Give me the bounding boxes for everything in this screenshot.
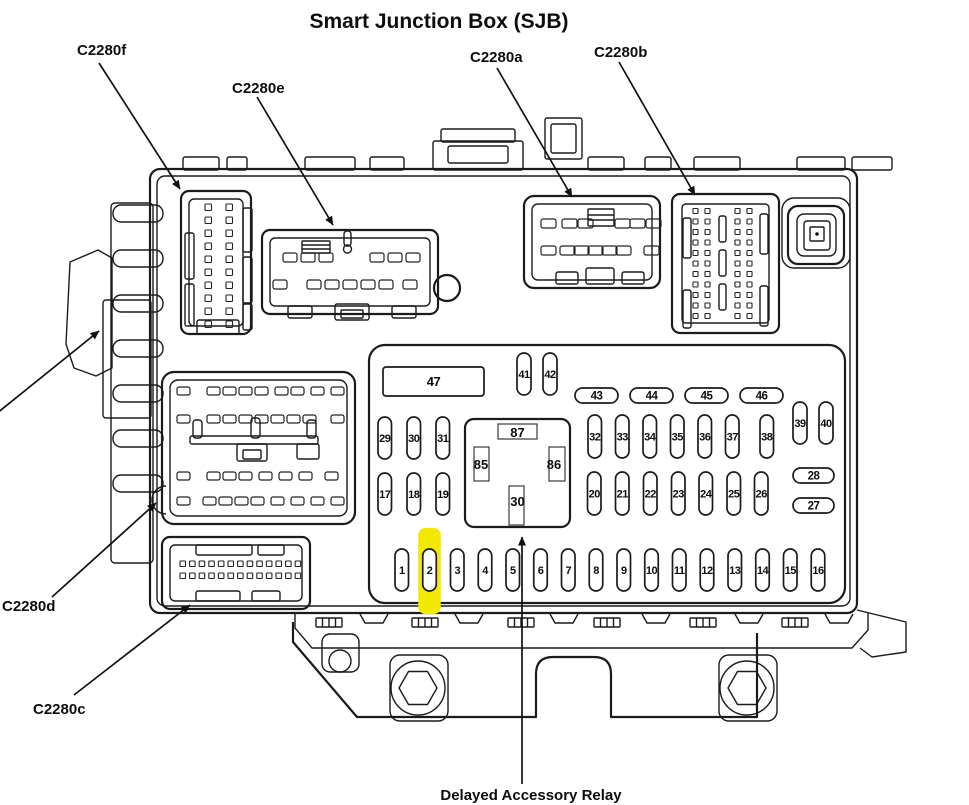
fuse-layer: 4741424344454629303117181932333435363738… xyxy=(378,353,834,591)
fuse-label-19: 19 xyxy=(437,489,449,501)
label-c2280c: C2280c xyxy=(33,701,86,718)
fuse-label-44: 44 xyxy=(646,391,659,403)
c2280e-leader-line xyxy=(257,97,333,225)
relay-label-86: 86 xyxy=(547,457,561,472)
relay-block: 87 85 86 30 xyxy=(465,419,570,527)
fuse-label-29: 29 xyxy=(379,433,391,445)
fuse-label-17: 17 xyxy=(379,489,391,501)
fuse-label-7: 7 xyxy=(565,565,571,577)
fuse-panel: 4741424344454629303117181932333435363738… xyxy=(369,345,845,614)
fuse-label-5: 5 xyxy=(510,565,516,577)
fuse-label-11: 11 xyxy=(674,565,685,577)
fuse-label-47: 47 xyxy=(427,374,441,389)
fuse-label-21: 21 xyxy=(617,488,629,500)
fuse-label-10: 10 xyxy=(646,565,658,577)
fuse-label-31: 31 xyxy=(437,433,449,445)
fuse-label-38: 38 xyxy=(761,431,773,443)
fuse-label-15: 15 xyxy=(785,565,797,577)
fuse-label-37: 37 xyxy=(727,431,739,443)
fuse-label-30: 30 xyxy=(408,433,420,445)
fuse-label-8: 8 xyxy=(593,565,599,577)
fuse-label-6: 6 xyxy=(538,565,544,577)
fuse-label-20: 20 xyxy=(589,488,601,500)
fuse-label-16: 16 xyxy=(812,565,824,577)
fuse-label-1: 1 xyxy=(399,565,405,577)
fuse-label-9: 9 xyxy=(621,565,627,577)
label-c2280d: C2280d xyxy=(2,598,55,615)
fuse-label-32: 32 xyxy=(589,431,601,443)
fuse-label-13: 13 xyxy=(729,565,741,577)
fuse-label-2: 2 xyxy=(427,565,433,577)
fuse-label-12: 12 xyxy=(701,565,713,577)
fuse-label-26: 26 xyxy=(756,488,768,500)
c2280f-leader-line xyxy=(99,63,180,189)
offscreen-leader-line xyxy=(0,331,99,414)
fuse-label-23: 23 xyxy=(673,488,685,500)
fuse-label-27: 27 xyxy=(808,501,820,513)
fuse-label-28: 28 xyxy=(808,471,821,483)
fuse-label-33: 33 xyxy=(617,431,629,443)
fuse-label-24: 24 xyxy=(700,488,713,500)
fuse-label-36: 36 xyxy=(699,431,711,443)
fuse-label-45: 45 xyxy=(701,391,714,403)
c2280d-leader-line xyxy=(52,503,156,597)
fuse-label-14: 14 xyxy=(757,565,770,577)
label-c2280e: C2280e xyxy=(232,80,285,97)
fuse-label-46: 46 xyxy=(756,391,768,403)
fuse-label-35: 35 xyxy=(672,431,684,443)
sjb-diagram: 4741424344454629303117181932333435363738… xyxy=(0,0,969,805)
fuse-label-3: 3 xyxy=(454,565,460,577)
fuse-label-43: 43 xyxy=(591,391,603,403)
fuse-label-39: 39 xyxy=(794,418,806,430)
label-c2280f: C2280f xyxy=(77,42,127,59)
fuse-label-42: 42 xyxy=(544,369,556,381)
c2280a-leader-line xyxy=(497,68,572,197)
page-title: Smart Junction Box (SJB) xyxy=(309,10,568,33)
relay-label-87: 87 xyxy=(510,425,524,440)
fuse-label-40: 40 xyxy=(820,418,832,430)
c2280c-leader-line xyxy=(74,605,190,695)
label-c2280b: C2280b xyxy=(594,44,647,61)
relay-label-85: 85 xyxy=(474,457,488,472)
c2280b-leader-line xyxy=(619,62,695,195)
label-c2280a: C2280a xyxy=(470,49,523,66)
relay-label-30: 30 xyxy=(510,494,524,509)
fuse-label-41: 41 xyxy=(518,369,530,381)
fuse-label-25: 25 xyxy=(728,488,740,500)
diagram-page: 4741424344454629303117181932333435363738… xyxy=(0,0,969,805)
fuse-label-18: 18 xyxy=(408,489,420,501)
label-delayed-accessory-relay: Delayed Accessory Relay xyxy=(440,787,622,804)
fuse-label-34: 34 xyxy=(644,431,657,443)
fuse-label-22: 22 xyxy=(645,488,657,500)
